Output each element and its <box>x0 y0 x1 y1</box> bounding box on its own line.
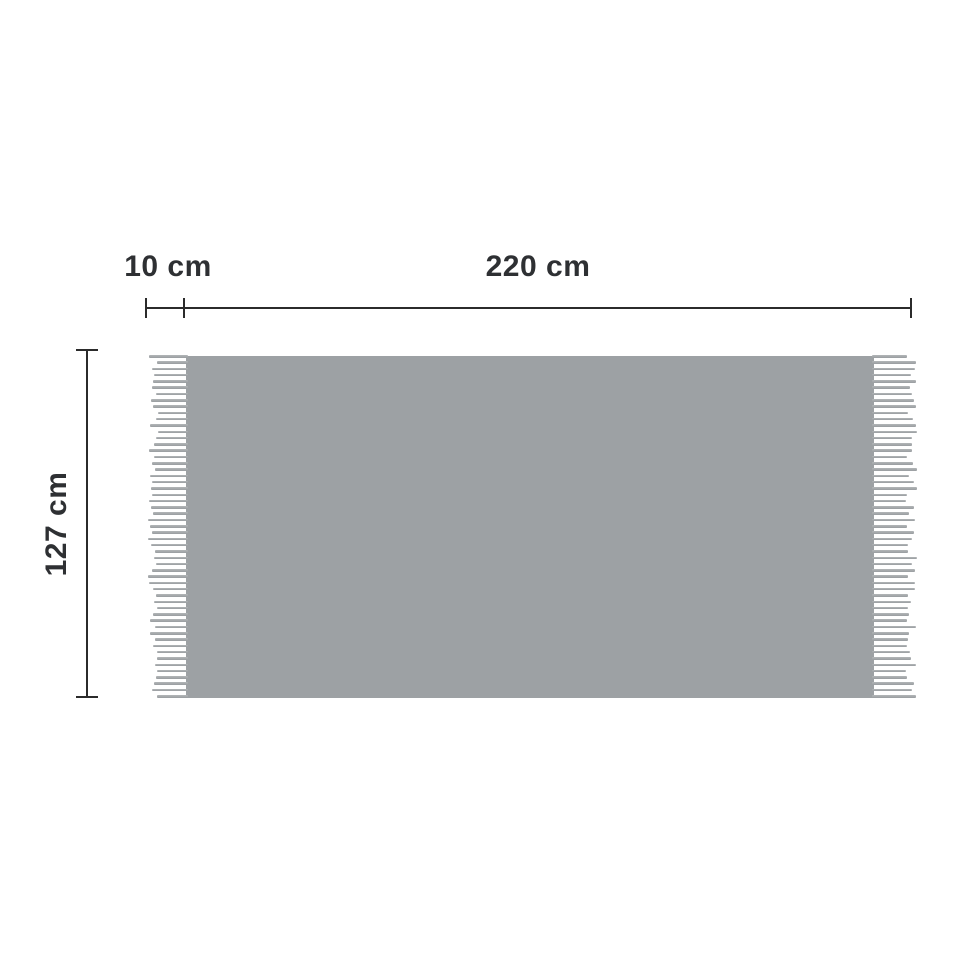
fringe-strand <box>872 531 914 534</box>
fringe-strand <box>156 594 188 597</box>
fringe-strand <box>149 500 188 503</box>
dimension-tick-width-end <box>910 298 912 318</box>
fringe-strand <box>872 380 916 383</box>
fringe-strand <box>872 468 917 471</box>
fringe-strand <box>152 368 188 371</box>
fringe-strand <box>872 393 912 396</box>
fringe-strand <box>872 475 909 478</box>
dimension-tick-fringe-end <box>183 298 185 318</box>
fringe-strand <box>151 506 188 509</box>
fringe-strand <box>872 525 907 528</box>
fringe-strand <box>872 487 917 490</box>
blanket-rectangle <box>186 356 874 698</box>
fringe-strand <box>872 689 912 692</box>
blanket-height-label: 127 cm <box>40 472 74 577</box>
fringe-strand <box>157 651 188 654</box>
fringe-strand <box>158 431 188 434</box>
fringe-strand <box>152 386 188 389</box>
fringe-strand <box>155 468 188 471</box>
fringe-strand <box>872 368 915 371</box>
fringe-strand <box>872 695 916 698</box>
fringe-strand <box>872 563 912 566</box>
fringe-strand <box>872 557 917 560</box>
fringe-strand <box>872 594 908 597</box>
fringe-strand <box>872 481 914 484</box>
fringe-strand <box>156 418 188 421</box>
fringe-strand <box>157 361 188 364</box>
fringe-strand <box>872 651 910 654</box>
fringe-strand <box>153 588 188 591</box>
fringe-strand <box>149 355 188 358</box>
fringe-strand <box>152 462 188 465</box>
fringe-strand <box>872 619 907 622</box>
fringe-strand <box>153 512 188 515</box>
fringe-strand <box>872 512 909 515</box>
fringe-strand <box>872 645 907 648</box>
fringe-strand <box>872 462 913 465</box>
fringe-strand <box>155 664 188 667</box>
fringe-strand <box>872 449 912 452</box>
fringe-strand <box>153 613 188 616</box>
vertical-dimension-line <box>86 350 88 698</box>
fringe-strand <box>872 424 916 427</box>
fringe-strand <box>872 412 908 415</box>
fringe-strand <box>872 386 910 389</box>
fringe-strand <box>872 613 909 616</box>
fringe-strand <box>152 689 188 692</box>
fringe-strand <box>155 626 188 629</box>
fringe-strand <box>150 424 188 427</box>
fringe-strand <box>872 506 914 509</box>
left-fringe <box>148 355 188 698</box>
fringe-strand <box>872 361 916 364</box>
fringe-strand <box>154 682 188 685</box>
fringe-strand <box>150 525 188 528</box>
fringe-strand <box>872 443 912 446</box>
fringe-strand <box>872 575 908 578</box>
fringe-strand <box>154 557 188 560</box>
fringe-strand <box>872 374 911 377</box>
fringe-strand <box>149 449 188 452</box>
fringe-strand <box>872 550 908 553</box>
fringe-strand <box>158 412 188 415</box>
fringe-strand <box>156 437 188 440</box>
fringe-strand <box>148 575 188 578</box>
fringe-length-label: 10 cm <box>118 250 218 284</box>
fringe-strand <box>872 399 914 402</box>
fringe-strand <box>154 601 188 604</box>
fringe-strand <box>157 657 188 660</box>
fringe-strand <box>872 431 917 434</box>
fringe-strand <box>152 494 188 497</box>
fringe-strand <box>157 607 188 610</box>
fringe-strand <box>872 405 916 408</box>
fringe-strand <box>151 399 188 402</box>
fringe-strand <box>152 531 188 534</box>
fringe-strand <box>152 481 188 484</box>
fringe-strand <box>156 393 188 396</box>
fringe-strand <box>872 456 907 459</box>
fringe-strand <box>151 544 188 547</box>
fringe-strand <box>872 519 915 522</box>
fringe-strand <box>872 355 907 358</box>
horizontal-dimension-line <box>145 307 912 309</box>
fringe-strand <box>148 538 188 541</box>
fringe-strand <box>155 638 188 641</box>
fringe-strand <box>872 538 912 541</box>
fringe-strand <box>872 670 906 673</box>
fringe-strand <box>872 569 915 572</box>
fringe-strand <box>872 682 914 685</box>
fringe-strand <box>156 676 188 679</box>
fringe-strand <box>872 664 916 667</box>
fringe-strand <box>872 500 906 503</box>
fringe-strand <box>872 437 912 440</box>
fringe-strand <box>153 380 188 383</box>
fringe-strand <box>872 494 907 497</box>
fringe-strand <box>152 569 188 572</box>
fringe-strand <box>872 626 916 629</box>
fringe-strand <box>872 632 909 635</box>
fringe-strand <box>872 657 911 660</box>
fringe-strand <box>872 638 908 641</box>
fringe-strand <box>153 405 188 408</box>
dimension-tick-height-bottom <box>76 696 98 698</box>
fringe-strand <box>872 607 908 610</box>
fringe-strand <box>151 487 188 490</box>
fringe-strand <box>156 563 188 566</box>
fringe-strand <box>872 676 907 679</box>
fringe-strand <box>157 695 188 698</box>
fringe-strand <box>154 456 188 459</box>
fringe-strand <box>154 443 188 446</box>
fringe-strand <box>157 670 188 673</box>
blanket-width-label: 220 cm <box>438 250 638 284</box>
fringe-strand <box>148 519 188 522</box>
fringe-strand <box>872 588 915 591</box>
fringe-strand <box>872 601 911 604</box>
fringe-strand <box>154 374 188 377</box>
right-fringe <box>872 355 919 698</box>
dimension-tick-height-top <box>76 349 98 351</box>
fringe-strand <box>150 619 188 622</box>
fringe-strand <box>872 582 915 585</box>
fringe-strand <box>153 645 188 648</box>
fringe-strand <box>155 550 188 553</box>
fringe-strand <box>150 632 188 635</box>
fringe-strand <box>872 544 908 547</box>
dimension-tick-fringe-start <box>145 298 147 318</box>
product-dimension-diagram: 10 cm 220 cm 127 cm <box>0 0 960 960</box>
fringe-strand <box>872 418 913 421</box>
fringe-strand <box>150 475 188 478</box>
fringe-strand <box>149 582 188 585</box>
